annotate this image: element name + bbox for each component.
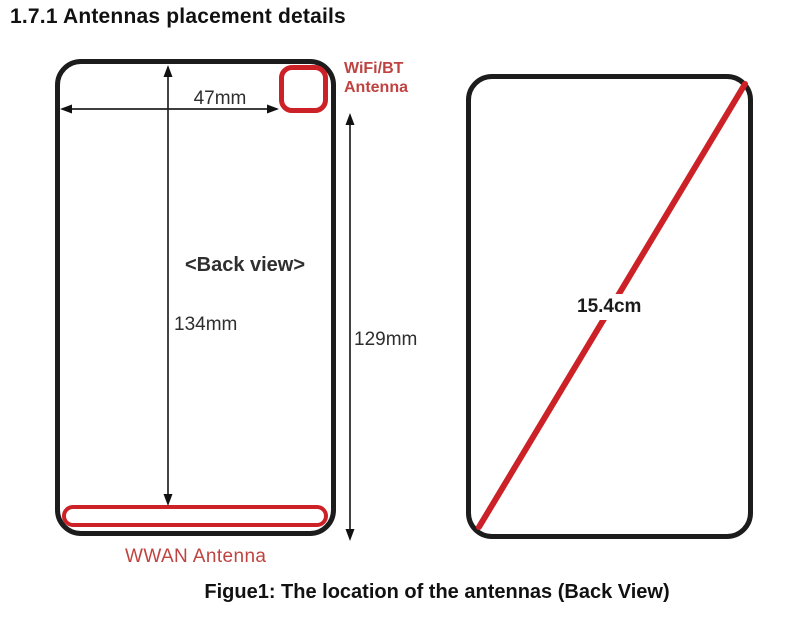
section-title: 1.7.1 Antennas placement details [10,5,346,29]
back-view-label: <Back view> [178,254,312,277]
dimension-label-47mm: 47mm [188,88,252,110]
antenna-placement-figure: 1.7.1 Antennas placement details 47mm 13… [0,0,800,619]
dimension-arrow-129mm [346,113,355,541]
dimension-label-129mm: 129mm [354,329,417,351]
dimension-label-134mm: 134mm [174,314,237,336]
wifi-bt-antenna-shape [279,65,328,113]
figure-caption: Figue1: The location of the antennas (Ba… [137,581,737,604]
wifi-bt-antenna-label: WiFi/BT Antenna [344,59,408,97]
diagonal-dimension-label: 15.4cm [572,294,646,320]
wwan-antenna-label: WWAN Antenna [125,546,266,568]
device-back-view-outline [55,59,336,536]
wwan-antenna-shape [62,505,328,527]
